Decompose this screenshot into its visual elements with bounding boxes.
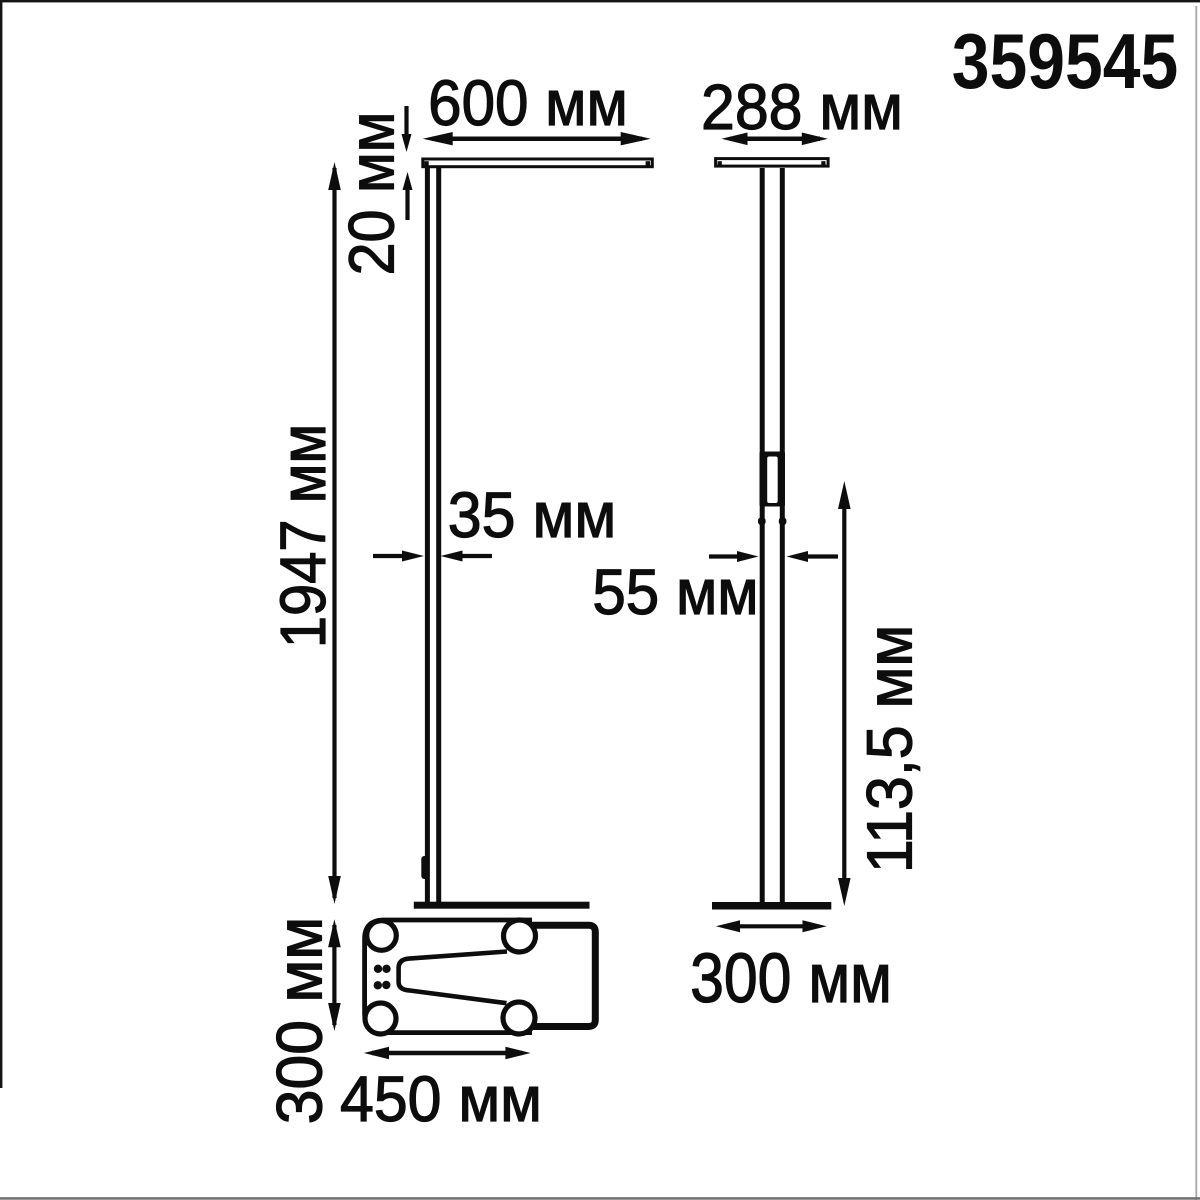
svg-text:35 мм: 35 мм: [448, 480, 616, 552]
svg-text:359545: 359545: [952, 19, 1178, 105]
svg-text:113,5 мм: 113,5 мм: [854, 625, 926, 873]
svg-text:600 мм: 600 мм: [428, 68, 628, 139]
svg-text:450 мм: 450 мм: [340, 1064, 542, 1136]
svg-text:20 мм: 20 мм: [336, 112, 408, 276]
svg-text:1947 мм: 1947 мм: [267, 424, 338, 648]
svg-text:300 мм: 300 мм: [265, 917, 336, 1124]
svg-text:55 мм: 55 мм: [592, 557, 758, 628]
svg-text:300 мм: 300 мм: [690, 939, 892, 1017]
